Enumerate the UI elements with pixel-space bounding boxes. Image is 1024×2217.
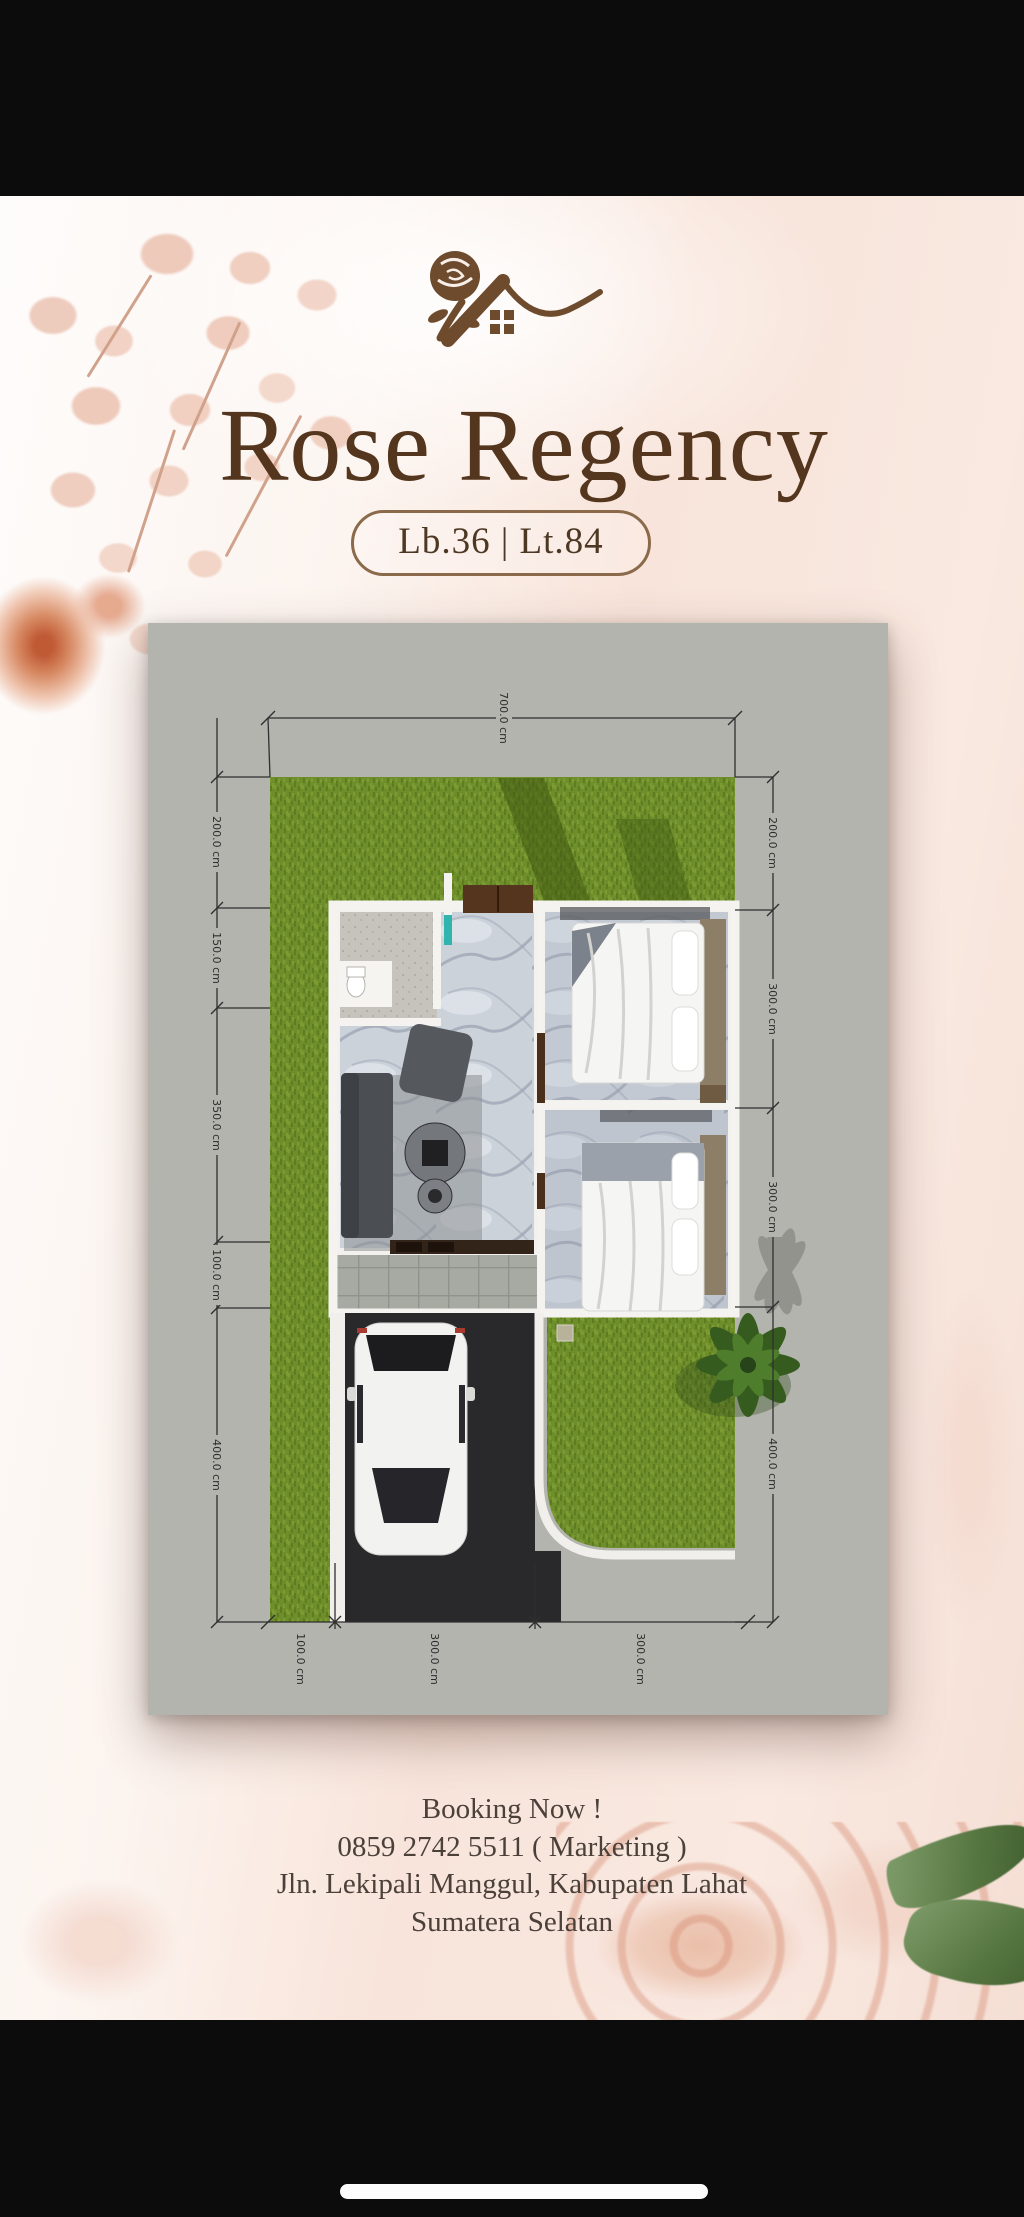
mirror (466, 1387, 475, 1401)
dim-left-1: 200.0 cm (210, 816, 223, 868)
brand-title: Rose Regency (12, 392, 1024, 500)
floor-plan-card: 700.0 cm 200.0 cm 150.0 cm 350.0 cm (148, 623, 888, 1715)
curb (330, 1313, 345, 1622)
top-letterbox-bar (0, 0, 1024, 196)
dim-top-label: 700.0 cm (497, 692, 510, 744)
pillow (672, 1219, 698, 1275)
dim-left-5: 400.0 cm (210, 1439, 223, 1491)
phone-screen: Rose Regency Lb.36 | Lt.84 (0, 0, 1024, 2217)
bedroom2-door (537, 1173, 545, 1209)
contact-block: Booking Now ! 0859 2742 5511 ( Marketing… (0, 1791, 1024, 1941)
rear-window (366, 1335, 456, 1371)
windshield (372, 1468, 450, 1523)
marketing-phone: 0859 2742 5511 ( Marketing ) (0, 1829, 1024, 1867)
floor-plan: 700.0 cm 200.0 cm 150.0 cm 350.0 cm (148, 623, 888, 1715)
house-window-icon (490, 310, 514, 334)
nightstand (700, 1085, 726, 1103)
spec-badge: Lb.36 | Lt.84 (351, 510, 651, 576)
dim-right-3: 300.0 cm (766, 1181, 779, 1233)
bathroom (333, 905, 441, 1026)
region-line: Sumatera Selatan (0, 1904, 1024, 1942)
watercolor-red-flower (0, 552, 170, 732)
dim-right-2: 300.0 cm (766, 983, 779, 1035)
house (333, 873, 735, 1313)
car (347, 1323, 475, 1555)
terrace-floor (335, 1255, 545, 1313)
booking-cta: Booking Now ! (0, 1791, 1024, 1829)
mirror (347, 1387, 356, 1401)
garden-lamp (557, 1325, 573, 1341)
flyer-poster: Rose Regency Lb.36 | Lt.84 (0, 196, 1024, 2020)
dim-left-3: 350.0 cm (210, 1099, 223, 1151)
dim-left-2: 150.0 cm (210, 932, 223, 984)
bed-bedroom2 (582, 1135, 726, 1311)
side-garden (547, 1313, 735, 1548)
palm-shadow (748, 1226, 812, 1317)
dim-bottom-1: 100.0 cm (294, 1633, 307, 1685)
pillow (672, 1007, 698, 1071)
bedroom1-door (537, 1033, 545, 1103)
rose-house-logo (400, 236, 610, 348)
dim-right-1: 200.0 cm (766, 817, 779, 869)
address-line: Jln. Lekipali Manggul, Kabupaten Lahat (0, 1866, 1024, 1904)
pillow (672, 1153, 698, 1209)
wardrobe-strip (600, 1110, 712, 1122)
bed-bedroom1 (572, 919, 726, 1103)
teal-door (444, 915, 452, 945)
dim-bottom-3: 300.0 cm (634, 1633, 647, 1685)
home-indicator[interactable] (340, 2184, 708, 2199)
pillow (672, 931, 698, 995)
dim-bottom-2: 300.0 cm (428, 1633, 441, 1685)
dim-left-4: 100.0 cm (210, 1249, 223, 1301)
dim-right-4: 400.0 cm (766, 1438, 779, 1490)
wardrobe-strip (560, 907, 710, 920)
